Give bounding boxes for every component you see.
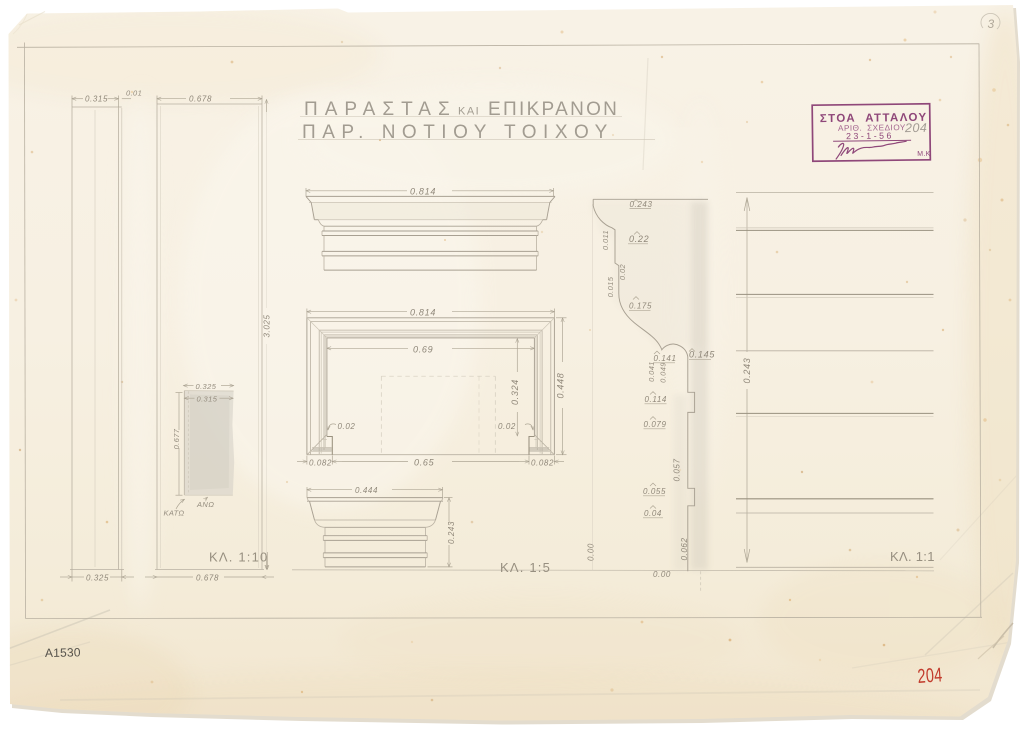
svg-text:0.678: 0.678	[196, 574, 219, 583]
svg-text:0.69: 0.69	[413, 344, 433, 354]
svg-text:0.02: 0.02	[498, 422, 516, 431]
svg-text:0.01: 0.01	[126, 89, 142, 98]
svg-text:0.444: 0.444	[355, 486, 378, 495]
svg-text:0.243: 0.243	[447, 521, 456, 544]
svg-text:0.055: 0.055	[643, 487, 666, 496]
svg-text:0.678: 0.678	[189, 95, 212, 104]
svg-text:3: 3	[988, 17, 995, 31]
svg-text:ΚΛ. 1:1: ΚΛ. 1:1	[890, 549, 935, 564]
svg-text:0.448: 0.448	[556, 372, 566, 398]
svg-text:204: 204	[917, 663, 944, 688]
svg-text:0.114: 0.114	[645, 395, 667, 404]
svg-text:Α1530: Α1530	[45, 645, 81, 660]
svg-text:0.175: 0.175	[629, 302, 652, 311]
svg-text:0.00: 0.00	[587, 543, 596, 561]
svg-text:0.015: 0.015	[606, 276, 615, 297]
svg-text:0.02: 0.02	[618, 263, 627, 280]
svg-text:0.325: 0.325	[196, 382, 217, 391]
svg-text:0.082: 0.082	[531, 458, 554, 467]
svg-text:0.049: 0.049	[659, 362, 668, 383]
svg-text:0.057: 0.057	[673, 458, 682, 481]
svg-text:0.65: 0.65	[414, 458, 435, 468]
svg-text:0.22: 0.22	[629, 234, 649, 244]
svg-text:0.315: 0.315	[85, 95, 108, 104]
svg-text:0.243: 0.243	[742, 357, 752, 383]
svg-text:204: 204	[904, 121, 928, 135]
svg-text:0.141: 0.141	[654, 354, 677, 363]
svg-text:0.315: 0.315	[197, 395, 218, 404]
svg-text:0.011: 0.011	[601, 230, 610, 250]
svg-text:ΚΑΙ: ΚΑΙ	[458, 106, 480, 118]
svg-text:0.324: 0.324	[510, 379, 520, 405]
svg-text:ΚΑΤΩ: ΚΑΤΩ	[164, 509, 185, 518]
svg-text:0.079: 0.079	[644, 420, 667, 429]
svg-text:0.677: 0.677	[172, 428, 181, 449]
svg-text:0.145: 0.145	[689, 350, 715, 360]
svg-text:ΚΛ. 1:10: ΚΛ. 1:10	[209, 550, 268, 565]
svg-text:ΚΛ. 1:5: ΚΛ. 1:5	[500, 560, 551, 575]
svg-text:23-1-56: 23-1-56	[846, 131, 894, 142]
svg-text:0.325: 0.325	[86, 574, 109, 583]
svg-text:0.04: 0.04	[644, 509, 662, 518]
svg-text:0.041: 0.041	[647, 361, 656, 382]
svg-text:0.082: 0.082	[309, 458, 332, 467]
svg-text:3.025: 3.025	[263, 314, 272, 337]
svg-text:0.814: 0.814	[410, 186, 436, 196]
svg-text:0.02: 0.02	[338, 422, 356, 431]
svg-text:0.062: 0.062	[680, 537, 689, 560]
svg-text:ΑΝΩ: ΑΝΩ	[196, 500, 214, 509]
svg-text:Μ.Κ: Μ.Κ	[917, 151, 930, 158]
svg-text:0.814: 0.814	[410, 307, 436, 317]
svg-text:0.243: 0.243	[630, 200, 653, 209]
svg-text:0.00: 0.00	[653, 570, 671, 579]
